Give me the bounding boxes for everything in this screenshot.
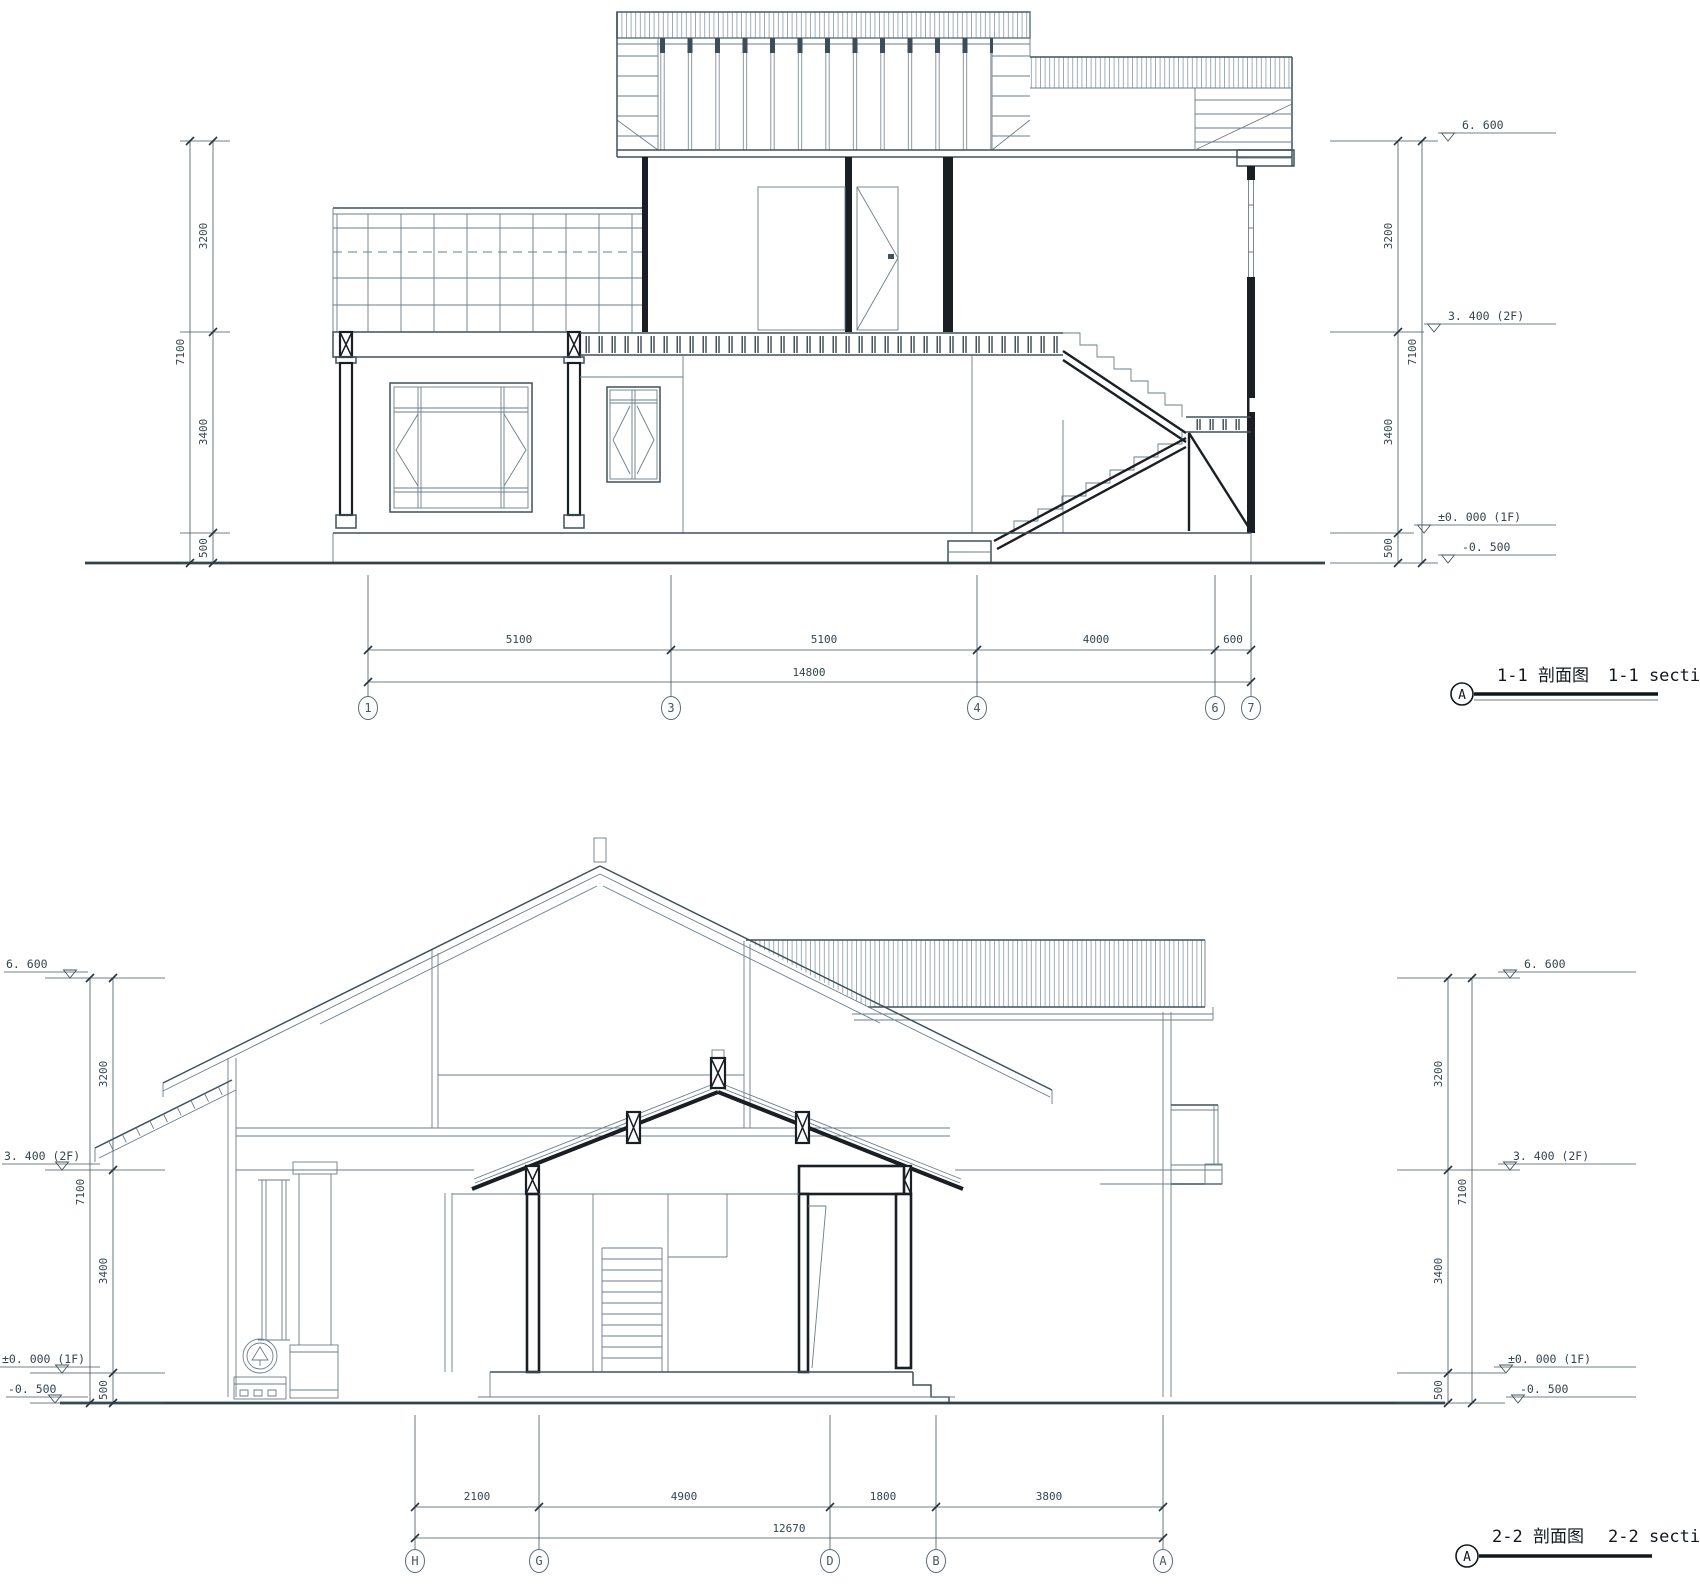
level-label: 6. 600 <box>1462 118 1504 132</box>
grid-bubble-label: D <box>826 1554 833 1568</box>
s1-detail-marker-letter: A <box>1458 688 1466 703</box>
grid-bubble-label: A <box>1159 1554 1167 1568</box>
s1-dim-3400-left: 3400 <box>197 419 210 446</box>
level-label: 6. 600 <box>1524 957 1566 971</box>
s2-queen-post-right <box>796 1112 809 1143</box>
grid-bubble-label: B <box>932 1554 939 1568</box>
s1-span-dim: 600 <box>1223 633 1243 646</box>
s2-dim-500-left: 500 <box>97 1380 110 1400</box>
s1-dim-7100-right: 7100 <box>1406 339 1419 366</box>
s2-eave-post-left <box>526 1166 539 1194</box>
s2-title-en: 2-2 section <box>1608 1527 1700 1547</box>
s2-door-lintel <box>799 1166 904 1194</box>
level-label: ±0. 000 (1F) <box>1438 510 1521 524</box>
s2-span-dim: 3800 <box>1036 1490 1063 1503</box>
s2-column-mid <box>799 1194 808 1372</box>
s1-dim-3200-right: 3200 <box>1382 223 1395 250</box>
level-label: 6. 600 <box>6 957 48 971</box>
level-label: 3. 400 (2F) <box>1448 309 1524 323</box>
s1-title-en: 1-1 section <box>1608 666 1700 686</box>
level-label: 3. 400 (2F) <box>4 1149 80 1163</box>
s2-dim-7100-right: 7100 <box>1456 1179 1469 1206</box>
level-label: -0. 500 <box>1520 1382 1569 1396</box>
s2-column-right <box>896 1194 911 1368</box>
s2-dim-3200-right: 3200 <box>1432 1061 1445 1088</box>
s2-span-total: 12670 <box>772 1522 805 1535</box>
level-label: 3. 400 (2F) <box>1513 1149 1589 1163</box>
grid-bubble-label: G <box>535 1554 542 1568</box>
s2-dim-3400-right: 3400 <box>1432 1258 1445 1285</box>
grid-bubble-label: 7 <box>1247 701 1254 715</box>
grid-bubble-label: 1 <box>364 701 371 715</box>
s2-dim-500-right: 500 <box>1432 1380 1445 1400</box>
s1-dim-7100-left: 7100 <box>174 339 187 366</box>
s2-detail-marker-letter: A <box>1463 1550 1471 1565</box>
level-label: ±0. 000 (1F) <box>2 1352 85 1366</box>
s2-span-dim: 1800 <box>870 1490 897 1503</box>
s1-span-dim: 5100 <box>811 633 838 646</box>
grid-bubble-label: H <box>411 1554 418 1568</box>
level-label: ±0. 000 (1F) <box>1508 1352 1591 1366</box>
drawing-canvas: 3200 3400 500 7100 3200 3400 500 7100 6.… <box>0 0 1700 1586</box>
s1-dim-3200-left: 3200 <box>197 223 210 250</box>
s2-title-zh: 2-2 剖面图 <box>1492 1527 1584 1547</box>
s1-title-zh: 1-1 剖面图 <box>1497 666 1589 686</box>
s1-wall-notch <box>1250 398 1257 412</box>
level-label: -0. 500 <box>8 1382 57 1396</box>
s2-king-post <box>711 1058 725 1088</box>
s2-dim-3200-left: 3200 <box>97 1061 110 1088</box>
s1-span-dim: 5100 <box>506 633 533 646</box>
s1-canopy-column-right <box>564 357 584 528</box>
s2-dim-7100-left: 7100 <box>74 1179 87 1206</box>
s1-dim-500-left: 500 <box>197 538 210 558</box>
s2-span-dim: 2100 <box>464 1490 491 1503</box>
s1-span-total: 14800 <box>792 666 825 679</box>
s1-dim-500-right: 500 <box>1382 538 1395 558</box>
level-label: -0. 500 <box>1462 540 1511 554</box>
s1-canopy-column-left <box>336 357 356 528</box>
grid-bubble-label: 6 <box>1211 701 1218 715</box>
s1-span-dim: 4000 <box>1083 633 1110 646</box>
s2-queen-post-left <box>627 1112 640 1143</box>
s1-floor-band <box>580 333 1063 355</box>
s2-span-dim: 4900 <box>671 1490 698 1503</box>
s2-dim-3400-left: 3400 <box>97 1258 110 1285</box>
grid-bubble-label: 3 <box>667 701 674 715</box>
s1-dim-3400-right: 3400 <box>1382 419 1395 446</box>
grid-bubble-label: 4 <box>973 701 980 715</box>
drawing-sheet: 3200 3400 500 7100 3200 3400 500 7100 6.… <box>0 0 1700 1586</box>
s1-door-handle-icon <box>888 254 894 259</box>
s2-column-left <box>527 1194 539 1372</box>
